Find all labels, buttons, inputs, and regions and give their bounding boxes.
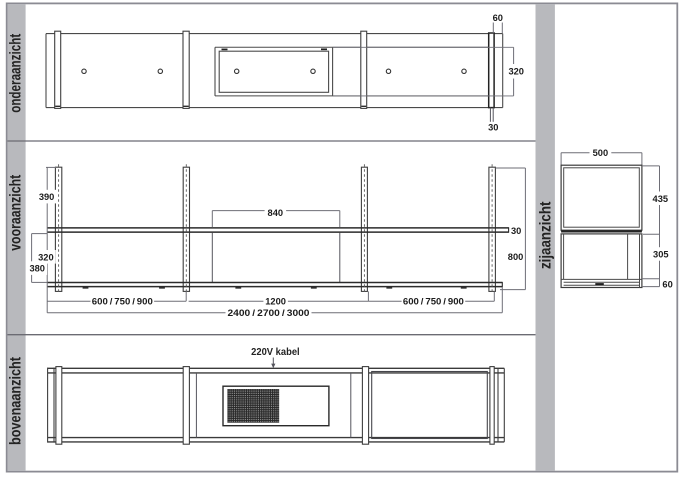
svg-text:500: 500 xyxy=(593,148,609,158)
svg-text:840: 840 xyxy=(268,208,284,218)
svg-text:320: 320 xyxy=(38,252,54,262)
svg-text:220V kabel: 220V kabel xyxy=(251,346,300,358)
svg-text:305: 305 xyxy=(653,250,669,260)
svg-text:380: 380 xyxy=(29,264,45,274)
svg-text:60: 60 xyxy=(493,13,503,23)
svg-text:320: 320 xyxy=(508,67,524,77)
svg-text:zijaanzicht: zijaanzicht xyxy=(538,201,555,269)
svg-text:2400 / 2700 / 3000: 2400 / 2700 / 3000 xyxy=(228,308,310,318)
svg-text:30: 30 xyxy=(511,226,521,236)
svg-text:800: 800 xyxy=(508,252,524,262)
svg-text:390: 390 xyxy=(39,192,55,202)
svg-text:vooraanzicht: vooraanzicht xyxy=(8,174,25,251)
svg-text:600 / 750 / 900: 600 / 750 / 900 xyxy=(92,297,153,307)
svg-text:onderaanzicht: onderaanzicht xyxy=(8,33,25,112)
svg-text:1200: 1200 xyxy=(265,297,286,307)
svg-text:60: 60 xyxy=(662,279,672,289)
svg-text:bovenaanzicht: bovenaanzicht xyxy=(8,356,25,445)
svg-text:600 / 750 / 900: 600 / 750 / 900 xyxy=(403,297,464,307)
svg-text:435: 435 xyxy=(653,194,669,204)
svg-text:30: 30 xyxy=(488,123,498,133)
